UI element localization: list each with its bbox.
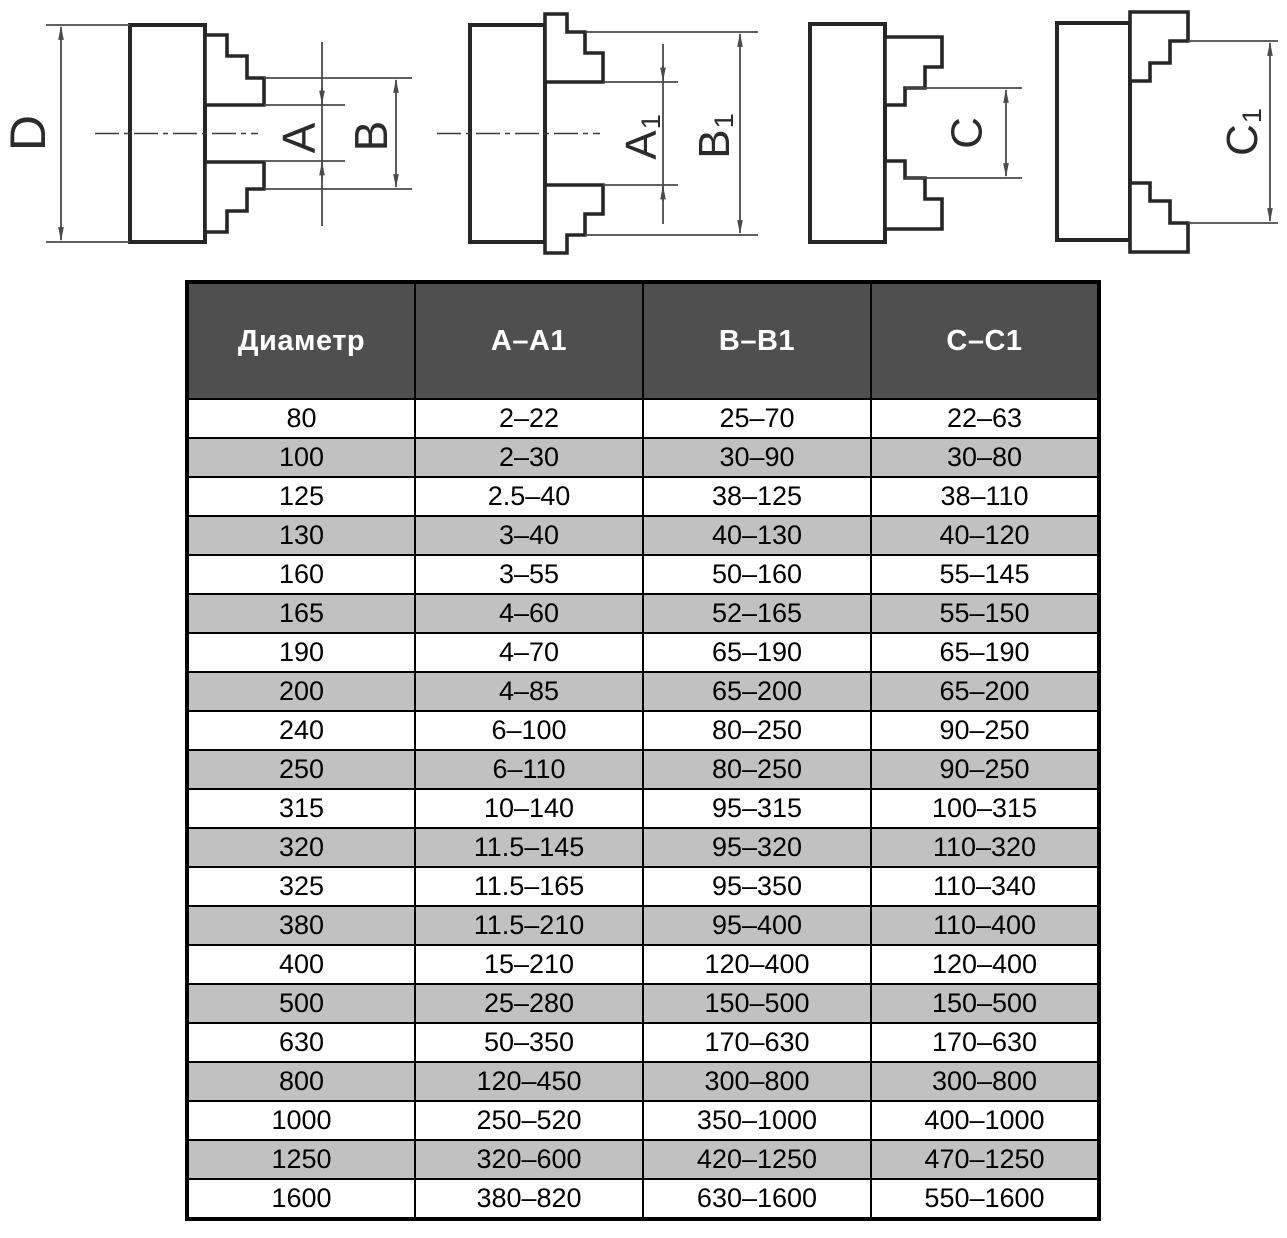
col-header-c-c1: C–C1: [871, 282, 1099, 399]
cell-b-b1: 170–630: [643, 1023, 871, 1062]
cell-a-a1: 3–55: [415, 555, 643, 594]
cell-b-b1: 80–250: [643, 711, 871, 750]
table-row: 380 11.5–210 95–400 110–400: [187, 906, 1099, 945]
cell-b-b1: 350–1000: [643, 1101, 871, 1140]
cell-c-c1: 55–150: [871, 594, 1099, 633]
table-row: 400 15–210 120–400 120–400: [187, 945, 1099, 984]
cell-a-a1: 15–210: [415, 945, 643, 984]
cell-diameter: 130: [187, 516, 415, 555]
cell-c-c1: 40–120: [871, 516, 1099, 555]
diagram-chuck-jaws-C1: C1: [1057, 12, 1278, 252]
cell-c-c1: 400–1000: [871, 1101, 1099, 1140]
cell-diameter: 400: [187, 945, 415, 984]
cell-c-c1: 30–80: [871, 438, 1099, 477]
table-row: 160 3–55 50–160 55–145: [187, 555, 1099, 594]
diagram-chuck-jaws-C: C: [810, 24, 1022, 242]
table-body: 80 2–22 25–70 22–63 100 2–30 30–90 30–80…: [187, 399, 1099, 1219]
cell-diameter: 165: [187, 594, 415, 633]
cell-diameter: 100: [187, 438, 415, 477]
table-row: 800 120–450 300–800 300–800: [187, 1062, 1099, 1101]
cell-diameter: 325: [187, 867, 415, 906]
table-row: 315 10–140 95–315 100–315: [187, 789, 1099, 828]
cell-c-c1: 120–400: [871, 945, 1099, 984]
diagram-chuck-jaws-AB: D A B: [0, 25, 412, 242]
cell-diameter: 630: [187, 1023, 415, 1062]
dim-label-C: C: [943, 117, 992, 149]
cell-a-a1: 6–110: [415, 750, 643, 789]
cell-b-b1: 65–200: [643, 672, 871, 711]
cell-diameter: 500: [187, 984, 415, 1023]
cell-a-a1: 6–100: [415, 711, 643, 750]
cell-b-b1: 95–400: [643, 906, 871, 945]
cell-diameter: 160: [187, 555, 415, 594]
cell-diameter: 800: [187, 1062, 415, 1101]
cell-a-a1: 50–350: [415, 1023, 643, 1062]
cell-c-c1: 22–63: [871, 399, 1099, 438]
cell-a-a1: 10–140: [415, 789, 643, 828]
cell-b-b1: 65–190: [643, 633, 871, 672]
cell-c-c1: 550–1600: [871, 1179, 1099, 1219]
cell-c-c1: 65–200: [871, 672, 1099, 711]
cell-a-a1: 11.5–210: [415, 906, 643, 945]
table-row: 630 50–350 170–630 170–630: [187, 1023, 1099, 1062]
table-row: 250 6–110 80–250 90–250: [187, 750, 1099, 789]
cell-diameter: 80: [187, 399, 415, 438]
cell-c-c1: 55–145: [871, 555, 1099, 594]
cell-b-b1: 150–500: [643, 984, 871, 1023]
cell-a-a1: 120–450: [415, 1062, 643, 1101]
chuck-jaw-top: [545, 14, 603, 82]
cell-b-b1: 420–1250: [643, 1140, 871, 1179]
cell-c-c1: 300–800: [871, 1062, 1099, 1101]
cell-a-a1: 2–30: [415, 438, 643, 477]
table-row: 125 2.5–40 38–125 38–110: [187, 477, 1099, 516]
table-row: 100 2–30 30–90 30–80: [187, 438, 1099, 477]
cell-a-a1: 25–280: [415, 984, 643, 1023]
cell-a-a1: 250–520: [415, 1101, 643, 1140]
cell-a-a1: 4–60: [415, 594, 643, 633]
cell-b-b1: 95–315: [643, 789, 871, 828]
cell-a-a1: 4–85: [415, 672, 643, 711]
cell-b-b1: 38–125: [643, 477, 871, 516]
cell-a-a1: 4–70: [415, 633, 643, 672]
cell-diameter: 1250: [187, 1140, 415, 1179]
cell-c-c1: 90–250: [871, 711, 1099, 750]
diagram-chuck-jaws-A1B1: A1 B1: [437, 14, 758, 253]
cell-c-c1: 90–250: [871, 750, 1099, 789]
table-row: 80 2–22 25–70 22–63: [187, 399, 1099, 438]
cell-c-c1: 110–320: [871, 828, 1099, 867]
table-header: Диаметр A–A1 B–B1 C–C1: [187, 282, 1099, 399]
dim-label-B: B: [345, 121, 397, 152]
chuck-jaw-bottom: [885, 161, 942, 229]
cell-c-c1: 470–1250: [871, 1140, 1099, 1179]
table-row: 1250 320–600 420–1250 470–1250: [187, 1140, 1099, 1179]
cell-diameter: 1000: [187, 1101, 415, 1140]
table-row: 500 25–280 150–500 150–500: [187, 984, 1099, 1023]
chuck-jaw-top: [1130, 12, 1188, 81]
cell-a-a1: 11.5–165: [415, 867, 643, 906]
cell-diameter: 315: [187, 789, 415, 828]
cell-diameter: 320: [187, 828, 415, 867]
col-header-diameter: Диаметр: [187, 282, 415, 399]
table-row: 1000 250–520 350–1000 400–1000: [187, 1101, 1099, 1140]
cell-b-b1: 50–160: [643, 555, 871, 594]
chuck-jaw-bottom: [1130, 183, 1188, 252]
cell-c-c1: 110–340: [871, 867, 1099, 906]
table-row: 200 4–85 65–200 65–200: [187, 672, 1099, 711]
cell-b-b1: 52–165: [643, 594, 871, 633]
cell-diameter: 125: [187, 477, 415, 516]
cell-a-a1: 11.5–145: [415, 828, 643, 867]
cell-a-a1: 320–600: [415, 1140, 643, 1179]
table-row: 320 11.5–145 95–320 110–320: [187, 828, 1099, 867]
chuck-jaw-bottom: [205, 162, 264, 232]
cell-b-b1: 120–400: [643, 945, 871, 984]
cell-b-b1: 95–350: [643, 867, 871, 906]
chuck-jaw-top: [885, 37, 942, 105]
cell-c-c1: 110–400: [871, 906, 1099, 945]
cell-b-b1: 95–320: [643, 828, 871, 867]
table-row: 325 11.5–165 95–350 110–340: [187, 867, 1099, 906]
cell-diameter: 1600: [187, 1179, 415, 1219]
cell-c-c1: 100–315: [871, 789, 1099, 828]
chuck-diagrams: D A B A1 B1 C C1: [0, 0, 1287, 272]
cell-diameter: 240: [187, 711, 415, 750]
table-row: 130 3–40 40–130 40–120: [187, 516, 1099, 555]
chuck-body: [810, 24, 885, 242]
col-header-b-b1: B–B1: [643, 282, 871, 399]
dim-label-A: A: [273, 122, 325, 153]
table-row: 240 6–100 80–250 90–250: [187, 711, 1099, 750]
cell-b-b1: 25–70: [643, 399, 871, 438]
cell-c-c1: 65–190: [871, 633, 1099, 672]
cell-b-b1: 300–800: [643, 1062, 871, 1101]
table-row: 1600 380–820 630–1600 550–1600: [187, 1179, 1099, 1219]
dim-label-D: D: [0, 115, 56, 151]
cell-a-a1: 3–40: [415, 516, 643, 555]
cell-b-b1: 80–250: [643, 750, 871, 789]
chuck-jaw-top: [205, 35, 264, 105]
cell-diameter: 380: [187, 906, 415, 945]
cell-b-b1: 630–1600: [643, 1179, 871, 1219]
cell-c-c1: 150–500: [871, 984, 1099, 1023]
dim-label-A1: A1: [617, 114, 666, 160]
cell-diameter: 200: [187, 672, 415, 711]
chuck-jaw-bottom: [545, 185, 603, 253]
col-header-a-a1: A–A1: [415, 282, 643, 399]
table-row: 165 4–60 52–165 55–150: [187, 594, 1099, 633]
cell-a-a1: 2.5–40: [415, 477, 643, 516]
cell-diameter: 190: [187, 633, 415, 672]
header-row: Диаметр A–A1 B–B1 C–C1: [187, 282, 1099, 399]
cell-c-c1: 38–110: [871, 477, 1099, 516]
chuck-body: [1057, 23, 1130, 240]
dim-label-C1: C1: [1218, 108, 1267, 156]
cell-c-c1: 170–630: [871, 1023, 1099, 1062]
cell-b-b1: 40–130: [643, 516, 871, 555]
cell-a-a1: 380–820: [415, 1179, 643, 1219]
chuck-dimensions-table: Диаметр A–A1 B–B1 C–C1 80 2–22 25–70 22–…: [185, 280, 1101, 1221]
dim-label-B1: B1: [690, 113, 739, 159]
cell-diameter: 250: [187, 750, 415, 789]
cell-b-b1: 30–90: [643, 438, 871, 477]
cell-a-a1: 2–22: [415, 399, 643, 438]
table-row: 190 4–70 65–190 65–190: [187, 633, 1099, 672]
